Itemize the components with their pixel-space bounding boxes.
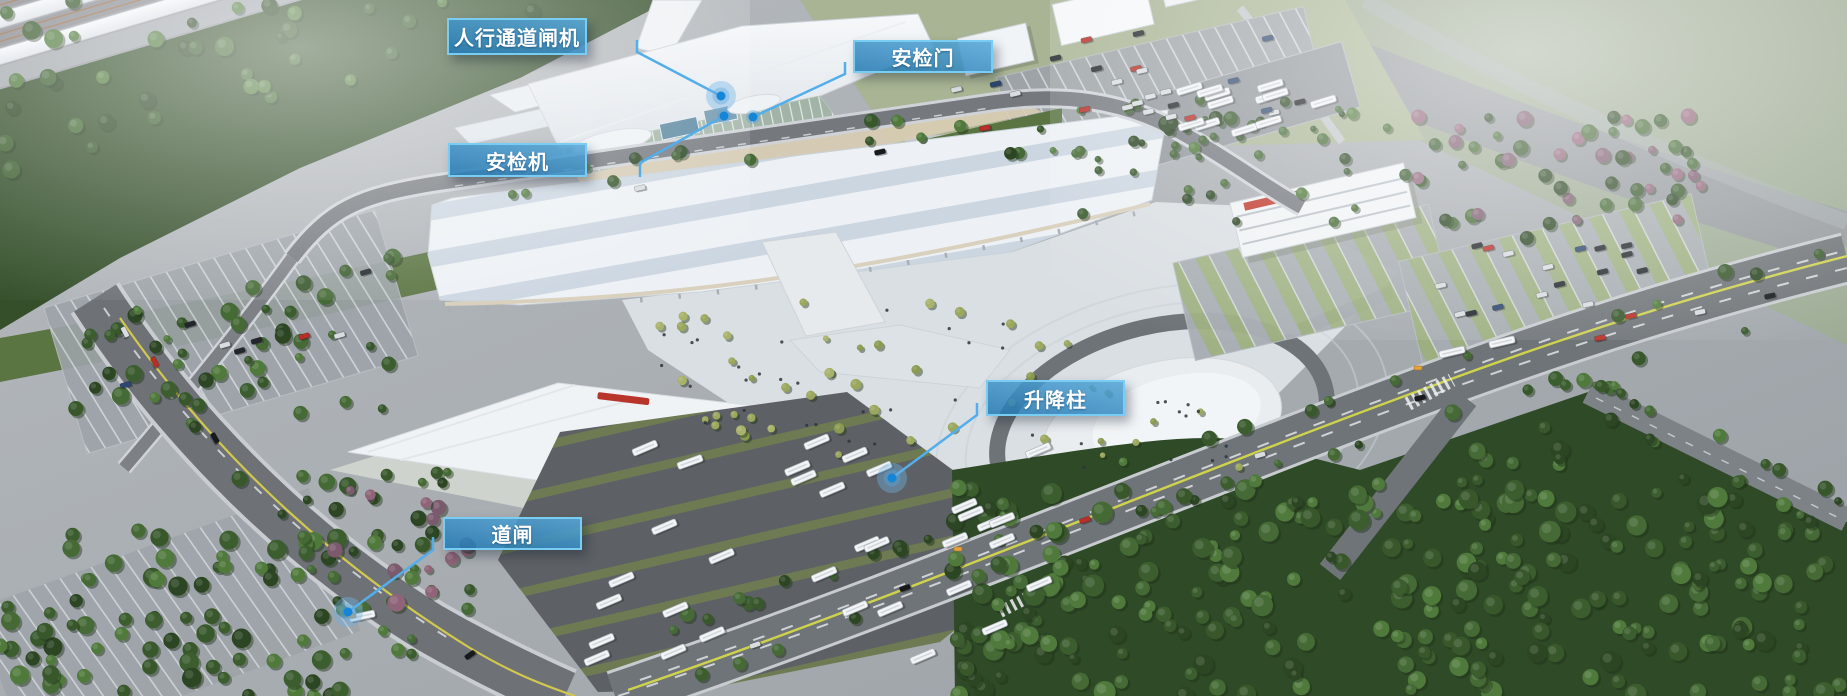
callout-barrier-gate: 道闸 [443, 517, 582, 550]
hero-banner: 人行通道闸机安检门安检机升降柱道闸 [0, 0, 1847, 696]
callout-security-door: 安检门 [853, 40, 993, 73]
callout-label: 人行通道闸机 [454, 22, 580, 51]
callout-label: 安检门 [892, 42, 955, 71]
callout-label: 道闸 [492, 519, 534, 548]
callout-pedestrian-gate: 人行通道闸机 [447, 18, 587, 55]
callout-lifting-bollard: 升降柱 [986, 380, 1125, 416]
callout-label: 安检机 [486, 146, 549, 175]
callout-xray-machine: 安检机 [448, 143, 587, 177]
station-aerial-rendering [0, 0, 1847, 696]
callout-label: 升降柱 [1024, 384, 1087, 413]
